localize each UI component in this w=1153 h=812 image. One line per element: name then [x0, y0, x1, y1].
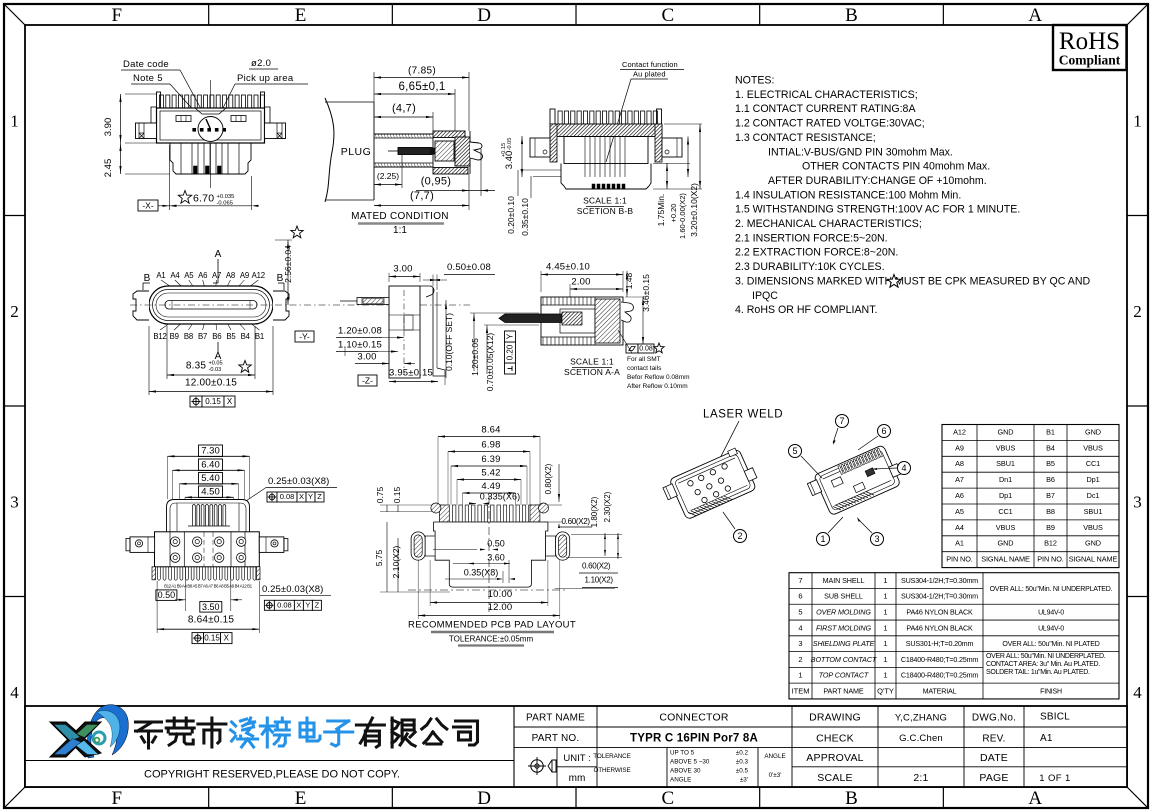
svg-text:4: 4	[1133, 683, 1142, 702]
svg-text:A9: A9	[240, 271, 249, 280]
svg-text:TOLERANCE:±0.05mm: TOLERANCE:±0.05mm	[449, 635, 534, 644]
svg-text:6.98: 6.98	[481, 440, 500, 451]
svg-text:-X-: -X-	[142, 200, 154, 210]
svg-text:B: B	[144, 273, 151, 284]
svg-text:Note 5: Note 5	[133, 73, 163, 84]
svg-text:Au plated: Au plated	[633, 70, 666, 79]
svg-text:6.39: 6.39	[481, 454, 500, 465]
svg-text:3.00: 3.00	[357, 352, 376, 363]
svg-text:1: 1	[883, 608, 887, 617]
svg-text:Dn1: Dn1	[999, 475, 1012, 484]
svg-text:C: C	[662, 5, 675, 26]
svg-text:0.60(X2): 0.60(X2)	[562, 517, 591, 526]
svg-text:2: 2	[1133, 302, 1142, 321]
svg-text:2: 2	[737, 531, 742, 541]
svg-text:10.00: 10.00	[488, 589, 513, 600]
svg-text:A4: A4	[955, 523, 964, 532]
svg-text:2.10(X2): 2.10(X2)	[391, 546, 401, 579]
svg-text:E: E	[295, 788, 307, 809]
svg-text:RECOMMENDED PCB PAD LAYOUT: RECOMMENDED PCB PAD LAYOUT	[408, 620, 576, 631]
svg-text:CC1: CC1	[1086, 459, 1100, 468]
svg-text:1: 1	[883, 623, 887, 632]
svg-text:3.95±0.15: 3.95±0.15	[389, 368, 433, 379]
svg-text:0.15: 0.15	[392, 486, 402, 503]
svg-text:A7: A7	[212, 271, 221, 280]
svg-text:3: 3	[10, 492, 19, 511]
svg-text:B1: B1	[1046, 427, 1055, 436]
svg-text:2.1 INSERTION FORCE:5~20N.: 2.1 INSERTION FORCE:5~20N.	[735, 232, 888, 244]
svg-text:SBICL: SBICL	[1040, 712, 1070, 723]
svg-text:0.20±0.10: 0.20±0.10	[506, 196, 516, 234]
svg-text:ITEM: ITEM	[792, 686, 810, 695]
svg-text:1.20±0.05: 1.20±0.05	[470, 338, 480, 376]
svg-text:COPYRIGHT RESERVED,PLEASE DO: COPYRIGHT RESERVED,PLEASE DO NOT COPY.	[144, 769, 400, 781]
svg-text:VBUS: VBUS	[996, 443, 1016, 452]
svg-text:PART NO.: PART NO.	[532, 733, 580, 744]
svg-text:0.15: 0.15	[204, 634, 220, 643]
svg-text:7: 7	[839, 416, 844, 426]
svg-text:UP TO 5: UP TO 5	[670, 750, 695, 757]
svg-text:B5: B5	[226, 332, 236, 341]
svg-text:A: A	[1028, 788, 1042, 809]
svg-text:PA46 NYLON BLACK: PA46 NYLON BLACK	[906, 623, 973, 632]
svg-text:0.335(X6): 0.335(X6)	[480, 492, 520, 502]
svg-text:4: 4	[10, 683, 19, 702]
svg-text:+0.05: +0.05	[209, 361, 223, 367]
svg-text:±3': ±3'	[740, 777, 748, 784]
svg-text:±0.2: ±0.2	[736, 750, 749, 757]
svg-text:CC1: CC1	[998, 507, 1012, 516]
svg-text:MAIN SHELL: MAIN SHELL	[823, 576, 865, 585]
svg-text:F: F	[112, 788, 123, 809]
svg-text:5: 5	[792, 446, 797, 456]
svg-text:3: 3	[874, 534, 879, 544]
svg-text:UNIT :: UNIT :	[563, 753, 590, 764]
svg-text:1.4 INSULATION RESISTANCE:100: 1.4 INSULATION RESISTANCE:100 Mohm Min.	[735, 189, 961, 201]
svg-text:B7: B7	[1046, 491, 1055, 500]
svg-text:3: 3	[1133, 492, 1142, 511]
svg-text:2.3 DURABILITY:10K CYCLES.: 2.3 DURABILITY:10K CYCLES.	[735, 261, 885, 273]
svg-text:0'±3': 0'±3'	[769, 772, 782, 779]
svg-text:OTHER CONTACTS PIN 40mohm Max.: OTHER CONTACTS PIN 40mohm Max.	[802, 161, 990, 173]
svg-text:CONNECTOR: CONNECTOR	[659, 712, 728, 724]
svg-text:3.60: 3.60	[487, 553, 505, 563]
svg-text:TOLERANCE: TOLERANCE	[593, 753, 630, 760]
svg-text:12.00: 12.00	[488, 602, 513, 613]
svg-text:GND: GND	[1085, 427, 1101, 436]
svg-text:1:1: 1:1	[393, 225, 407, 236]
svg-text:C: C	[662, 788, 675, 809]
svg-text:(4,7): (4,7)	[392, 103, 416, 115]
svg-text:0.75: 0.75	[375, 486, 385, 503]
svg-text:B12 A1 B9 A4 B8 A5 B7 A6 A7 B6: B12 A1 B9 A4 B8 A5 B7 A6 A7 B6 A8 B5 A9 …	[164, 584, 252, 589]
svg-text:For all SMT: For all SMT	[627, 356, 661, 363]
svg-text:7.30: 7.30	[201, 446, 220, 457]
svg-text:Dp1: Dp1	[999, 491, 1012, 500]
svg-text:(7.85): (7.85)	[408, 66, 436, 77]
svg-text:-0.03: -0.03	[209, 367, 222, 373]
svg-text:A4: A4	[170, 271, 180, 280]
svg-text:4.49: 4.49	[481, 481, 500, 492]
svg-text:4.50: 4.50	[201, 487, 220, 498]
svg-text:B4: B4	[1046, 443, 1055, 452]
svg-text:4. RoHS OR HF COMPLIANT.: 4. RoHS OR HF COMPLIANT.	[735, 304, 877, 316]
svg-text:SUS304-1/2H;T=0.30mm: SUS304-1/2H;T=0.30mm	[901, 592, 978, 601]
svg-text:Dc1: Dc1	[1087, 491, 1100, 500]
svg-text:Dp1: Dp1	[1086, 475, 1099, 484]
svg-text:INTIAL:V-BUS/GND PIN 30mohm Ma: INTIAL:V-BUS/GND PIN 30mohm Max.	[768, 146, 953, 158]
svg-text:SUB SHELL: SUB SHELL	[824, 592, 863, 601]
svg-text:GND: GND	[998, 427, 1014, 436]
svg-text:DATE: DATE	[980, 752, 1008, 764]
svg-text:mm: mm	[569, 773, 586, 784]
svg-text:1.3 CONTACT RESISTANCE;: 1.3 CONTACT RESISTANCE;	[735, 132, 876, 144]
svg-text:1: 1	[820, 534, 825, 544]
svg-text:5.75: 5.75	[374, 549, 384, 566]
svg-text:6.70: 6.70	[193, 193, 214, 205]
svg-text:GND: GND	[998, 539, 1014, 548]
svg-text:B5: B5	[1046, 459, 1055, 468]
svg-text:5.42: 5.42	[481, 468, 500, 479]
svg-text:3.46±0.15: 3.46±0.15	[641, 274, 651, 312]
svg-text:±0.3: ±0.3	[736, 759, 749, 766]
svg-text:SCALE 1:1: SCALE 1:1	[570, 357, 614, 367]
svg-text:SOLDER TAIL: 1u"Min. Au PLATED: SOLDER TAIL: 1u"Min. Au PLATED.	[986, 669, 1090, 676]
svg-text:4.45±0.10: 4.45±0.10	[546, 262, 590, 273]
svg-text:8.35: 8.35	[186, 361, 207, 372]
svg-text:5: 5	[798, 608, 802, 617]
svg-text:B6: B6	[212, 332, 221, 341]
svg-text:SUS304-1/2H;T=0.30mm: SUS304-1/2H;T=0.30mm	[901, 576, 978, 585]
svg-text:2.45: 2.45	[103, 159, 114, 178]
svg-text:ø2.0: ø2.0	[251, 58, 271, 69]
svg-text:B9: B9	[1046, 523, 1055, 532]
svg-text:RoHS: RoHS	[1059, 28, 1120, 55]
svg-text:MATED CONDITION: MATED CONDITION	[351, 211, 449, 222]
svg-text:0.70±0.05(X12): 0.70±0.05(X12)	[485, 333, 495, 392]
svg-text:1. ELECTRICAL CHARACTERISTICS;: 1. ELECTRICAL CHARACTERISTICS;	[735, 89, 918, 101]
svg-text:A: A	[215, 249, 222, 260]
svg-text:1 OF 1: 1 OF 1	[1039, 773, 1070, 784]
svg-text:F: F	[112, 5, 123, 26]
svg-text:A8: A8	[955, 459, 964, 468]
svg-text:A1: A1	[955, 539, 964, 548]
svg-text:B9: B9	[170, 332, 179, 341]
svg-text:DWG.No.: DWG.No.	[972, 713, 1016, 724]
svg-text:1: 1	[798, 671, 802, 680]
svg-text:8.64: 8.64	[481, 425, 500, 436]
svg-text:B7: B7	[198, 332, 207, 341]
svg-text:NOTES:: NOTES:	[735, 75, 774, 87]
svg-text:VBUS: VBUS	[1083, 443, 1103, 452]
svg-text:5.40: 5.40	[201, 473, 220, 484]
svg-text:After Reflow 0.10mm: After Reflow 0.10mm	[627, 383, 688, 390]
svg-text:ANGLE: ANGLE	[764, 753, 785, 760]
svg-text:4: 4	[901, 463, 906, 473]
svg-text:UL94V-0: UL94V-0	[1038, 610, 1064, 617]
svg-text:2.00: 2.00	[571, 277, 590, 288]
svg-text:OVER ALL: 50u"Min. NI UNDERPLA: OVER ALL: 50u"Min. NI UNDERPLATED.	[990, 586, 1113, 593]
svg-text:+0.035: +0.035	[217, 194, 235, 200]
svg-text:B12: B12	[153, 332, 166, 341]
svg-text:-Y-: -Y-	[299, 332, 310, 342]
svg-text:Befor Reflow 0.08mm: Befor Reflow 0.08mm	[627, 374, 690, 381]
svg-text:1.60-0.00(X2): 1.60-0.00(X2)	[678, 193, 687, 239]
svg-text:ANGLE: ANGLE	[670, 777, 691, 784]
svg-text:2: 2	[798, 655, 802, 664]
svg-text:OVER MOLDING: OVER MOLDING	[816, 608, 871, 617]
svg-text:BOTTOM CONTACT: BOTTOM CONTACT	[811, 655, 877, 664]
svg-text:X: X	[296, 601, 301, 610]
svg-text:B4: B4	[241, 332, 251, 341]
svg-text:B6: B6	[1046, 475, 1055, 484]
svg-text:A8: A8	[226, 271, 235, 280]
svg-text:1.5 WITHSTANDING STRENGTH:100V: 1.5 WITHSTANDING STRENGTH:100V AC FOR 1 …	[735, 204, 1020, 216]
svg-text:Z: Z	[315, 601, 320, 610]
svg-text:1.2 CONTACT RATED VOLTGE:30VAC: 1.2 CONTACT RATED VOLTGE:30VAC;	[735, 118, 925, 130]
svg-text:FINISH: FINISH	[1040, 688, 1062, 695]
svg-text:0.08: 0.08	[277, 601, 292, 610]
svg-text:Date code: Date code	[123, 59, 169, 70]
svg-text:6: 6	[881, 426, 886, 436]
svg-text:OVER ALL: 50u"Min. NI UNDERPLA: OVER ALL: 50u"Min. NI UNDERPLATED.	[986, 653, 1106, 660]
svg-text:1.1 CONTACT CURRENT RATING:8A: 1.1 CONTACT CURRENT RATING:8A	[735, 103, 916, 115]
svg-text:C18400-R480;T=0.25mm: C18400-R480;T=0.25mm	[901, 655, 979, 664]
svg-text:3.00: 3.00	[393, 264, 412, 275]
svg-text:A12: A12	[252, 271, 265, 280]
svg-text:0.08: 0.08	[280, 492, 295, 501]
svg-text:PAGE: PAGE	[979, 772, 1008, 784]
svg-text:PIN NO.: PIN NO.	[1037, 555, 1064, 564]
svg-text:PLUG: PLUG	[341, 146, 372, 158]
svg-text:2:1: 2:1	[913, 772, 928, 784]
svg-text:SUS301-H;T=0.20mm: SUS301-H;T=0.20mm	[906, 639, 974, 648]
svg-text:PART NAME: PART NAME	[526, 713, 585, 724]
svg-text:7: 7	[798, 576, 802, 585]
svg-text:VBUS: VBUS	[1083, 523, 1103, 532]
svg-text:E: E	[295, 5, 307, 26]
svg-text:AFTER DURABILITY:CHANGE OF +10: AFTER DURABILITY:CHANGE OF +10mohm.	[768, 175, 987, 187]
svg-text:(7,7): (7,7)	[410, 190, 434, 202]
svg-text:B: B	[845, 788, 858, 809]
svg-text:0.50±0.08: 0.50±0.08	[447, 262, 491, 273]
svg-text:0.08: 0.08	[639, 345, 653, 352]
svg-text:B1: B1	[255, 332, 264, 341]
svg-text:Pick up area: Pick up area	[237, 73, 294, 84]
svg-text:MATERIAL: MATERIAL	[923, 686, 957, 695]
svg-text:0.25±0.03(X8): 0.25±0.03(X8)	[262, 584, 323, 595]
svg-text:0.60(X2): 0.60(X2)	[582, 562, 611, 571]
svg-text:B8: B8	[1046, 507, 1055, 516]
svg-text:OTHERWISE: OTHERWISE	[593, 767, 630, 774]
svg-text:2.30(X2): 2.30(X2)	[603, 491, 612, 522]
svg-text:3.90: 3.90	[103, 118, 114, 137]
svg-text:CHECK: CHECK	[816, 733, 854, 745]
svg-text:A6: A6	[955, 491, 964, 500]
svg-text:A5: A5	[184, 271, 194, 280]
svg-text:4: 4	[798, 623, 802, 632]
svg-text:3: 3	[798, 639, 802, 648]
svg-text:X: X	[227, 397, 233, 406]
svg-text:PART NAME: PART NAME	[823, 686, 864, 695]
svg-text:A5: A5	[955, 507, 964, 516]
svg-text:A1: A1	[156, 271, 165, 280]
svg-text:PA46 NYLON BLACK: PA46 NYLON BLACK	[906, 608, 973, 617]
svg-text:APPROVAL: APPROVAL	[806, 752, 863, 764]
svg-text:-Z-: -Z-	[362, 376, 373, 386]
svg-text:SCALE: SCALE	[817, 772, 852, 784]
svg-text:A: A	[1028, 5, 1042, 26]
svg-text:0.20: 0.20	[505, 344, 514, 360]
svg-text:ABOVE 30: ABOVE 30	[670, 768, 701, 775]
svg-text:0.80(X2): 0.80(X2)	[544, 463, 553, 494]
svg-text:B8: B8	[184, 332, 193, 341]
svg-text:TYPR C 16PIN Por7 8A: TYPR C 16PIN Por7 8A	[630, 733, 758, 745]
svg-text:(2.25): (2.25)	[377, 171, 399, 181]
svg-text:12.00±0.15: 12.00±0.15	[185, 378, 237, 389]
svg-text:contact tails: contact tails	[627, 365, 662, 372]
svg-text:A6: A6	[198, 271, 207, 280]
svg-text:A1: A1	[1040, 733, 1053, 744]
svg-text:0.15: 0.15	[205, 397, 221, 406]
svg-text:ABOVE 5 ~30: ABOVE 5 ~30	[670, 759, 710, 766]
svg-text:0.35(X8): 0.35(X8)	[464, 568, 499, 578]
svg-text:0.35±0.10: 0.35±0.10	[520, 198, 530, 236]
svg-text:6: 6	[798, 592, 802, 601]
svg-text:Y: Y	[505, 333, 514, 339]
svg-text:+0.20: +0.20	[669, 204, 678, 223]
svg-text:X: X	[299, 492, 304, 501]
svg-text:1: 1	[883, 576, 887, 585]
svg-text:1.80(X2): 1.80(X2)	[590, 496, 599, 527]
svg-text:D: D	[477, 788, 491, 809]
svg-text:1: 1	[10, 111, 19, 130]
svg-text:3. DIMENSIONS MARKED WITH: 3. DIMENSIONS MARKED WITH MUST BE CPK ME…	[735, 275, 1090, 287]
svg-text:-0.05: -0.05	[507, 138, 513, 151]
svg-text:VBUS: VBUS	[996, 523, 1016, 532]
svg-text:DRAWING: DRAWING	[809, 712, 861, 724]
svg-text:UL94V-0: UL94V-0	[1038, 625, 1064, 632]
svg-text:0.25±0.03(X8): 0.25±0.03(X8)	[268, 476, 329, 487]
svg-text:SHIELDING PLATE: SHIELDING PLATE	[813, 639, 875, 648]
svg-text:1: 1	[883, 655, 887, 664]
svg-text:X: X	[224, 634, 230, 643]
svg-text:3.50: 3.50	[202, 602, 220, 612]
svg-text:CONTACT AREA: 3u" Min. Au PLAT: CONTACT AREA: 3u" Min. Au PLATED.	[986, 661, 1100, 668]
svg-text:Y: Y	[308, 492, 313, 501]
svg-text:Y: Y	[305, 601, 310, 610]
svg-text:1.10±0.15: 1.10±0.15	[338, 340, 382, 351]
svg-text:A9: A9	[955, 443, 964, 452]
svg-text:OVER ALL: 50u"Min. NI PLATED: OVER ALL: 50u"Min. NI PLATED	[1002, 641, 1099, 648]
svg-text:SCALE 1:1: SCALE 1:1	[583, 196, 627, 206]
svg-text:0.50: 0.50	[487, 539, 505, 549]
svg-text:1: 1	[883, 639, 887, 648]
svg-text:SBU1: SBU1	[1084, 507, 1103, 516]
svg-text:GND: GND	[1085, 539, 1101, 548]
svg-text:±0.5: ±0.5	[736, 768, 749, 775]
svg-text:6.40: 6.40	[201, 460, 220, 471]
svg-text:SCETION A-A: SCETION A-A	[564, 367, 620, 377]
svg-text:TOP CONTACT: TOP CONTACT	[819, 671, 869, 680]
svg-text:LASER WELD: LASER WELD	[703, 409, 783, 421]
svg-text:1: 1	[1133, 111, 1142, 130]
svg-text:8.64±0.15: 8.64±0.15	[188, 615, 234, 626]
svg-text:Compliant: Compliant	[1059, 53, 1121, 68]
svg-text:SCETION B-B: SCETION B-B	[577, 206, 634, 216]
svg-text:2. MECHANICAL CHARACTERISTICS;: 2. MECHANICAL CHARACTERISTICS;	[735, 218, 922, 230]
svg-text:SBU1: SBU1	[996, 459, 1015, 468]
svg-text:A12: A12	[953, 427, 966, 436]
svg-text:3.20±0.10(X2): 3.20±0.10(X2)	[689, 183, 699, 237]
svg-text:B12: B12	[1044, 539, 1057, 548]
svg-text:B: B	[845, 5, 858, 26]
svg-text:SIGNAL NAME: SIGNAL NAME	[1069, 555, 1118, 564]
svg-text:PIN NO.: PIN NO.	[946, 555, 973, 564]
svg-text:0.50: 0.50	[158, 590, 176, 600]
svg-text:1: 1	[883, 671, 887, 680]
svg-text:REV.: REV.	[982, 734, 1005, 745]
svg-text:IPQC: IPQC	[752, 290, 778, 302]
svg-text:G.C.Chen: G.C.Chen	[899, 733, 943, 744]
svg-text:A7: A7	[955, 475, 964, 484]
svg-text:1.75Min.: 1.75Min.	[656, 194, 666, 227]
svg-text:Contact function: Contact function	[622, 60, 678, 69]
svg-text:Q'TY: Q'TY	[877, 686, 894, 695]
svg-text:C18400-R480;T=0.25mm: C18400-R480;T=0.25mm	[901, 671, 979, 680]
svg-text:(0,95): (0,95)	[421, 176, 452, 188]
svg-text:1.10(X2): 1.10(X2)	[585, 576, 614, 585]
svg-text:SIGNAL NAME: SIGNAL NAME	[981, 555, 1030, 564]
svg-text:Y,C,ZHANG: Y,C,ZHANG	[895, 713, 947, 724]
svg-text:1.48: 1.48	[624, 272, 634, 289]
svg-text:1.20±0.08: 1.20±0.08	[338, 326, 382, 337]
svg-text:FIRST MOLDING: FIRST MOLDING	[816, 623, 872, 632]
svg-text:0.10(OFF SET): 0.10(OFF SET)	[444, 313, 454, 371]
svg-text:D: D	[477, 5, 491, 26]
svg-text:1: 1	[883, 592, 887, 601]
svg-text:2: 2	[10, 302, 19, 321]
svg-text:6,65±0,1: 6,65±0,1	[398, 81, 445, 93]
svg-text:2.2 EXTRACTION FORCE:8~20N.: 2.2 EXTRACTION FORCE:8~20N.	[735, 247, 898, 259]
svg-text:Z: Z	[317, 492, 322, 501]
